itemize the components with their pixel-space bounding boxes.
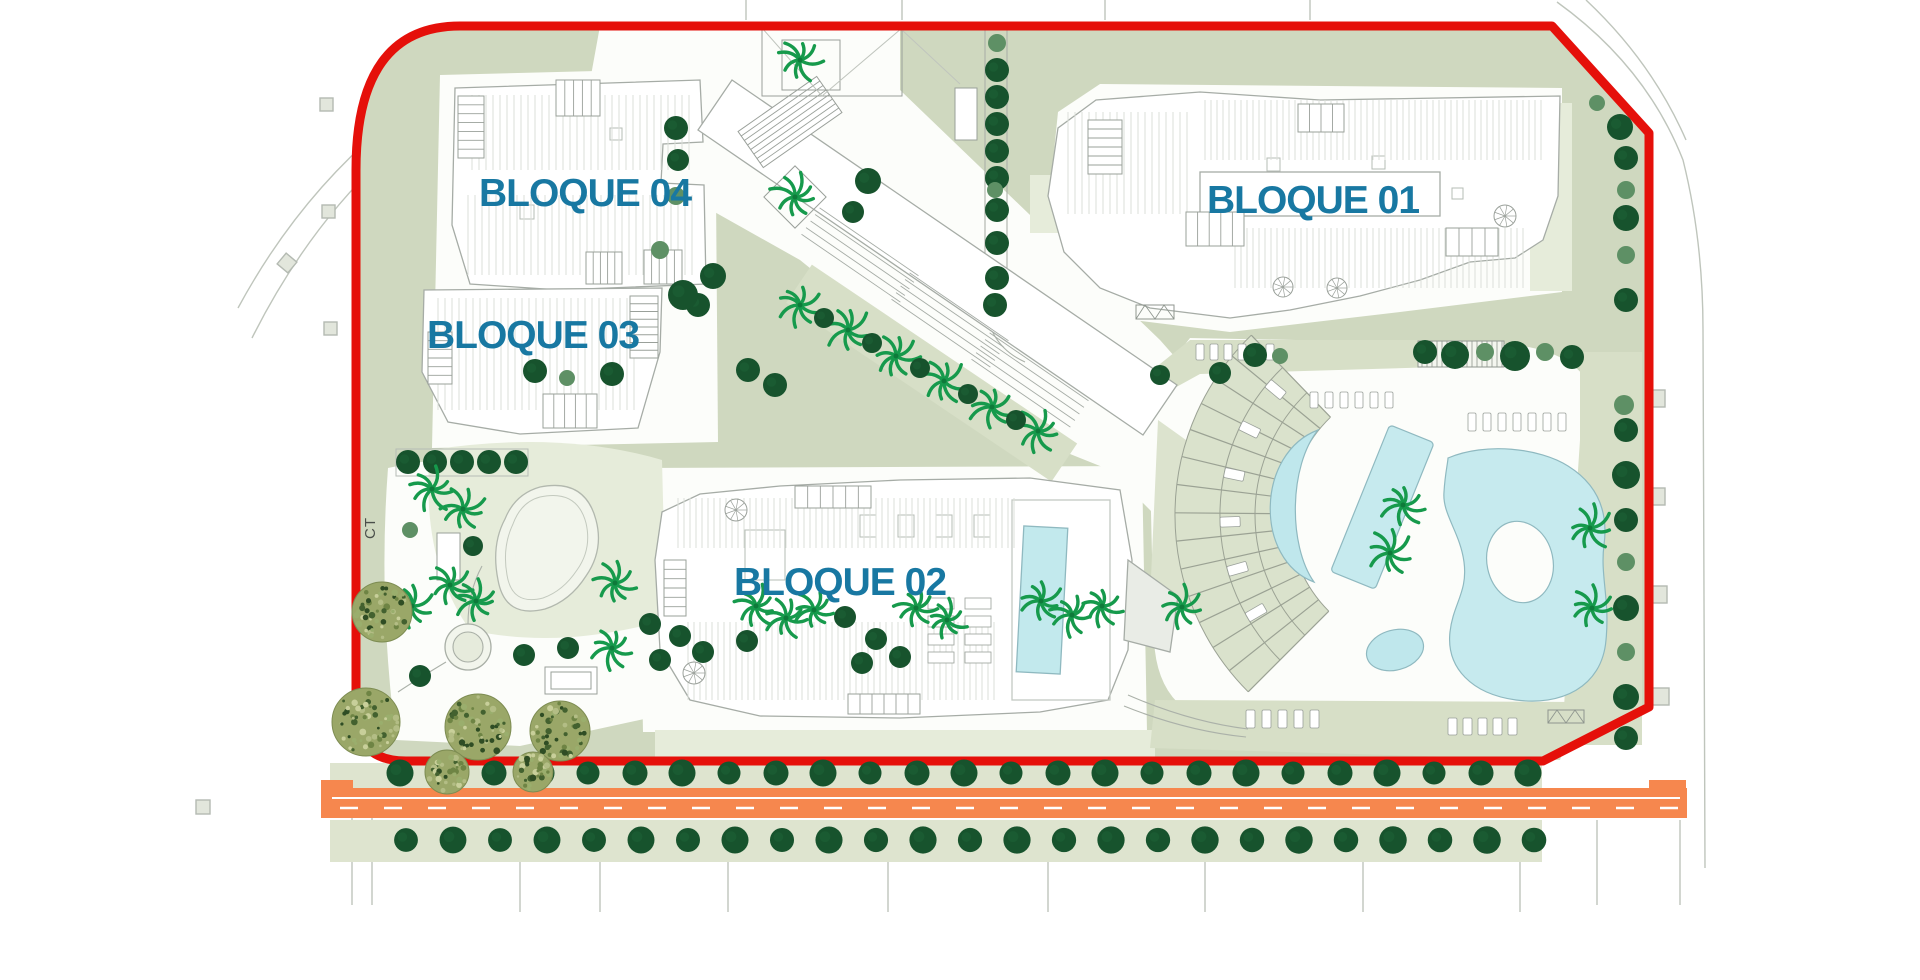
road-surface[interactable] [321,788,1687,818]
bloque-02-label: BLOQUE 02 [734,561,946,604]
bloque-01-label: BLOQUE 01 [1207,179,1419,222]
fountain-circle-inner [453,632,483,662]
plot-tick [746,0,1310,20]
bloque-03-label: BLOQUE 03 [427,314,639,357]
bloque-04-label: BLOQUE 04 [479,172,692,215]
ct-label: CT [362,517,379,539]
site-plan: BLOQUE 01 BLOQUE 02 BLOQUE 03 BLOQUE 04 … [0,0,1920,980]
bloque-03-building [422,288,662,434]
site-plan-drawing: BLOQUE 01 BLOQUE 02 BLOQUE 03 BLOQUE 04 … [0,0,1920,980]
road-verge-upper [330,763,1542,788]
